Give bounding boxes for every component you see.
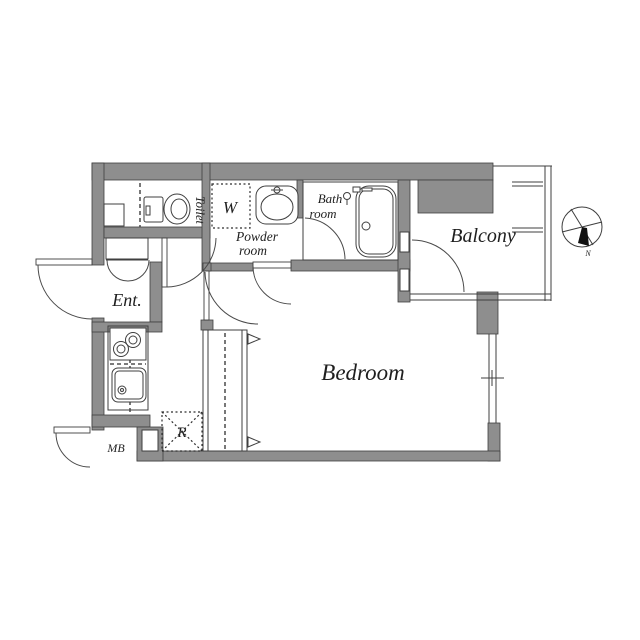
- bath-counter-mark: [362, 188, 372, 191]
- floor-plan: Toilet W Powder room Bath room Balcony E…: [0, 0, 640, 640]
- bath-room-label-line2: room: [310, 206, 337, 221]
- powder-door-leaf: [253, 262, 291, 268]
- powder-room-label-line1: Powder: [235, 229, 279, 244]
- wall-kitchen-bottom: [92, 415, 150, 427]
- balcony-door-arc: [412, 240, 464, 292]
- floor-plan-drawing: Toilet W Powder room Bath room Balcony E…: [0, 0, 640, 640]
- closet-arrow-top-icon: [248, 334, 260, 344]
- w-closet-label: W: [223, 198, 239, 217]
- wall-left-lower: [92, 318, 104, 430]
- balcony-window-pane-lower: [400, 269, 409, 291]
- mb-door-arc: [56, 433, 90, 467]
- shoe-cabinet-door-left-arc: [107, 260, 128, 281]
- wall-powder-bottom-left: [210, 263, 253, 271]
- kitchen-unit: [108, 326, 148, 413]
- compass-north-label: N: [584, 249, 591, 258]
- wall-bath-bottom: [291, 260, 410, 271]
- toilet-label: Toilet: [193, 196, 207, 225]
- entrance-door-arc: [38, 265, 92, 319]
- toilet-flush-handle: [146, 206, 150, 215]
- washbasin: [256, 186, 298, 224]
- bedroom-label: Bedroom: [321, 360, 404, 385]
- meter-box-niche: [142, 430, 158, 451]
- pipe-space: [104, 204, 124, 226]
- shoe-cabinet-door-right-arc: [128, 260, 149, 281]
- wall-balcony-corner: [477, 292, 498, 334]
- wall-toilet-bottom: [104, 227, 210, 238]
- wall-top: [92, 163, 493, 180]
- wall-top-right-block: [418, 180, 493, 213]
- toilet-bowl: [164, 194, 190, 224]
- compass-icon: [562, 207, 602, 247]
- powder-room-label-line2: room: [239, 243, 267, 258]
- balcony-label: Balcony: [450, 225, 516, 247]
- shower-icon: [344, 193, 351, 200]
- bedroom-window: [481, 334, 504, 423]
- meter-box-label: MB: [106, 441, 125, 455]
- powder-door-arc: [253, 266, 291, 304]
- wall-stub-closet-top: [201, 320, 213, 330]
- bathtub: [356, 186, 396, 257]
- balcony-window-pane-upper: [400, 232, 409, 252]
- bath-faucet: [353, 187, 360, 192]
- refrigerator-label: R: [176, 425, 186, 441]
- hall-door-leaf: [162, 238, 167, 287]
- closet-arrow-bottom-icon: [248, 437, 260, 447]
- entrance-label: Ent.: [111, 290, 142, 310]
- shoe-cabinet-box: [106, 238, 148, 259]
- bath-door-arc: [305, 218, 345, 259]
- mb-door-leaf: [54, 427, 90, 433]
- kitchen-sink: [112, 368, 146, 402]
- toilet-fixture: [140, 183, 190, 227]
- bath-room-label-line1: Bath: [318, 191, 343, 206]
- wall-left-upper: [92, 163, 104, 265]
- bedroom-door-leaf: [204, 271, 209, 320]
- bedroom-door-arc: [205, 272, 258, 324]
- closet: [203, 330, 260, 451]
- entrance-door-leaf: [36, 259, 92, 265]
- wall-entrance-right: [150, 262, 162, 322]
- shoe-cabinet: [106, 238, 149, 281]
- wall-bottom: [137, 451, 500, 461]
